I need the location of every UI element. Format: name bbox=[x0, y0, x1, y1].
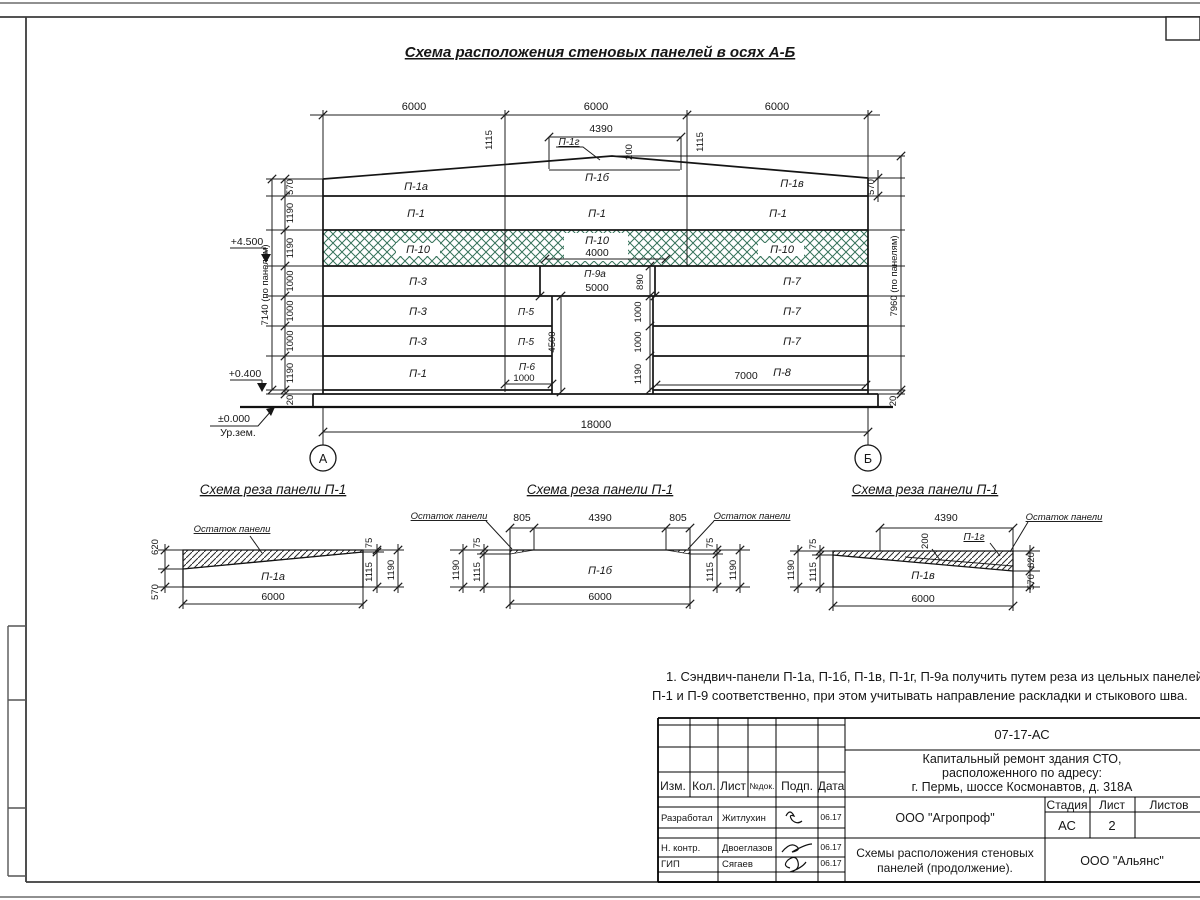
tb-header-cell: Лист bbox=[720, 779, 747, 793]
dim-label: 1190 bbox=[451, 560, 462, 580]
dim-label: 7000 bbox=[734, 370, 758, 382]
tb-name: Двоеглазов bbox=[722, 843, 773, 854]
panel-label: П-7 bbox=[783, 276, 802, 288]
dim-label: 20 bbox=[888, 396, 899, 407]
dim-label: 18000 bbox=[581, 419, 612, 431]
dim-label: 1190 bbox=[633, 364, 644, 384]
dim-label: 620 bbox=[1026, 552, 1037, 568]
dim-label: 1115 bbox=[705, 562, 716, 582]
elevation-mark: +0.400 bbox=[229, 368, 262, 380]
panel-label: П-1 bbox=[588, 208, 606, 220]
dim-label: 805 bbox=[513, 512, 531, 524]
dim-label: 75 bbox=[705, 538, 716, 549]
tb-header-cell: Лист bbox=[1099, 798, 1126, 812]
tb-header-cell: №док. bbox=[750, 781, 775, 791]
note-line: П-1 и П-9 соответственно, при этом учиты… bbox=[652, 688, 1188, 703]
panel-label: П-1в bbox=[911, 570, 935, 582]
scheme-title: Схема реза панели П-1 bbox=[527, 482, 674, 497]
dim-label: 1115 bbox=[808, 562, 819, 582]
cut-scheme-1: Схема реза панели П-1 Остаток панели П-1… bbox=[150, 482, 404, 609]
corner-mark-box bbox=[1166, 17, 1200, 40]
tb-header-cell: Листов bbox=[1150, 798, 1189, 812]
dim-label: 570 bbox=[1026, 574, 1037, 590]
panel-label: П-8 bbox=[773, 367, 792, 379]
panel-label: П-10 bbox=[770, 244, 795, 256]
panel-label: П-7 bbox=[783, 336, 802, 348]
drawing-sheet: Схема расположения стеновых панелей в ос… bbox=[0, 0, 1200, 900]
tb-role: Н. контр. bbox=[661, 843, 700, 854]
dim-label: 1000 bbox=[285, 330, 296, 351]
signature bbox=[782, 844, 812, 852]
left-margin-stamp-boxes bbox=[8, 626, 26, 876]
panel-label: П-1б bbox=[585, 172, 610, 184]
signature bbox=[786, 812, 802, 823]
sheet-number: 2 bbox=[1108, 818, 1115, 833]
panel-label: П-1в bbox=[780, 178, 804, 190]
elevation-mark: ±0.000 bbox=[218, 413, 250, 425]
tb-name: Житлухин bbox=[722, 813, 766, 824]
dim-label: 890 bbox=[635, 274, 646, 290]
dim-label: 200 bbox=[920, 533, 931, 549]
dim-label: 1115 bbox=[484, 130, 495, 150]
scheme-title: Схема реза панели П-1 bbox=[200, 482, 347, 497]
dim-label: 570 bbox=[285, 179, 296, 195]
dim-label: 1190 bbox=[728, 560, 739, 580]
dim-label: 4390 bbox=[934, 512, 958, 524]
panel-label: П-3 bbox=[409, 306, 428, 318]
dim-label: 6000 bbox=[911, 593, 935, 605]
panel-label: П-1 bbox=[407, 208, 425, 220]
remainder-label: Остаток панели bbox=[714, 511, 792, 522]
dim-label: 805 bbox=[669, 512, 687, 524]
elevation-mark: +4.500 bbox=[231, 236, 264, 248]
dim-label: 1000 bbox=[633, 301, 644, 322]
dim-label: 5000 bbox=[585, 282, 609, 294]
panel-label: П-1г bbox=[963, 532, 984, 543]
main-title: Схема расположения стеновых панелей в ос… bbox=[405, 44, 796, 61]
dim-label: 620 bbox=[150, 539, 161, 555]
dim-label: 1190 bbox=[786, 560, 797, 580]
panel-label: П-7 bbox=[783, 306, 802, 318]
drawing-canvas: Схема расположения стеновых панелей в ос… bbox=[0, 0, 1200, 900]
panel-label: П-1б bbox=[588, 565, 613, 577]
dim-label: 1190 bbox=[285, 238, 296, 258]
org-name: ООО "Агропроф" bbox=[895, 811, 994, 825]
ground-level-label: Ур.зем. bbox=[220, 427, 256, 439]
dim-label: 6000 bbox=[261, 591, 285, 603]
dim-label: 1190 bbox=[285, 203, 296, 223]
project-name: расположенного по адресу: bbox=[942, 766, 1102, 780]
panel-label: П-6 bbox=[519, 362, 536, 373]
panel-label: П-1 bbox=[409, 368, 427, 380]
remainder-label: Остаток панели bbox=[411, 511, 489, 522]
dim-label: 1190 bbox=[386, 560, 397, 580]
title-block: 07-17-АС Капитальный ремонт здания СТО, … bbox=[658, 718, 1200, 882]
dim-label: 6000 bbox=[402, 101, 426, 113]
dim-label: 200 bbox=[624, 144, 635, 160]
panel-label: П-1 bbox=[769, 208, 787, 220]
dim-label: 4000 bbox=[585, 247, 609, 259]
dim-label: 7960 (по панелям) bbox=[889, 235, 900, 316]
dim-label: 4390 bbox=[589, 123, 613, 135]
sheet-title: Схемы расположения стеновых bbox=[856, 846, 1034, 860]
tb-header-cell: Кол. bbox=[692, 779, 716, 793]
dim-label: 1000 bbox=[513, 373, 534, 384]
tb-header-cell: Дата bbox=[818, 779, 845, 793]
axis-label: Б bbox=[864, 452, 872, 466]
dim-label: 7140 (по панелям) bbox=[260, 244, 271, 325]
tb-header-cell: Изм. bbox=[660, 779, 686, 793]
panel-label: П-3 bbox=[409, 336, 428, 348]
scheme-title: Схема реза панели П-1 bbox=[852, 482, 999, 497]
remainder-label: Остаток панели bbox=[1026, 512, 1104, 523]
panel-label: П-10 bbox=[585, 235, 610, 247]
signature bbox=[785, 857, 806, 872]
cut-scheme-2: Схема реза панели П-1 Остаток панели Ост… bbox=[411, 482, 792, 609]
stage-value: АС bbox=[1058, 818, 1076, 833]
dim-label: 75 bbox=[472, 538, 483, 549]
dim-label: 4390 bbox=[588, 512, 612, 524]
cut-scheme-3: Схема реза панели П-1 4390 Остаток панел… bbox=[786, 482, 1103, 611]
note-line: 1. Сэндвич-панели П-1а, П-1б, П-1в, П-1г… bbox=[666, 669, 1200, 684]
axis-label: А bbox=[319, 452, 328, 466]
sheet-title: панелей (продолжение). bbox=[877, 861, 1013, 875]
dim-label: 1190 bbox=[285, 363, 296, 383]
tb-header-cell: Стадия bbox=[1047, 798, 1088, 812]
tb-role: Разработал bbox=[661, 813, 713, 824]
tb-role: ГИП bbox=[661, 859, 680, 870]
panel-label: П-9а bbox=[584, 269, 606, 280]
panel-label: П-3 bbox=[409, 276, 428, 288]
panel-label: П-1г bbox=[558, 137, 579, 148]
dim-label: 1000 bbox=[285, 300, 296, 321]
tb-header-cell: Подп. bbox=[781, 779, 813, 793]
panel-label: П-1а bbox=[261, 571, 285, 583]
tb-name: Сягаев bbox=[722, 859, 753, 870]
dim-label: 1000 bbox=[633, 331, 644, 352]
dim-label: 1115 bbox=[364, 562, 375, 582]
dim-label: 570 bbox=[150, 584, 161, 600]
dim-label: 1115 bbox=[472, 562, 483, 582]
project-name: г. Пермь, шоссе Космонавтов, д. 318А bbox=[912, 780, 1133, 794]
dim-label: 1000 bbox=[285, 270, 296, 291]
tb-date: 06.17 bbox=[820, 858, 842, 868]
panel-label: П-10 bbox=[406, 244, 431, 256]
doc-number: 07-17-АС bbox=[994, 727, 1049, 742]
org-name: ООО "Альянс" bbox=[1080, 854, 1164, 868]
remainder-label: Остаток панели bbox=[194, 524, 272, 535]
dim-label: 75 bbox=[808, 539, 819, 550]
dim-label: 6000 bbox=[765, 101, 789, 113]
panel-label: П-5 bbox=[518, 337, 535, 348]
dim-label: 75 bbox=[364, 538, 375, 549]
dim-label: 6000 bbox=[584, 101, 608, 113]
project-name: Капитальный ремонт здания СТО, bbox=[923, 752, 1122, 766]
panel-label: П-5 bbox=[518, 307, 535, 318]
dim-label: 4500 bbox=[547, 331, 558, 352]
dim-label: 6000 bbox=[588, 591, 612, 603]
panel-label: П-1а bbox=[404, 181, 428, 193]
dim-label: 570 bbox=[866, 179, 877, 195]
elevation-linework bbox=[210, 110, 905, 471]
dim-label: 1115 bbox=[695, 132, 706, 152]
notes: 1. Сэндвич-панели П-1а, П-1б, П-1в, П-1г… bbox=[652, 669, 1200, 703]
dim-label: 20 bbox=[285, 395, 296, 406]
tb-date: 06.17 bbox=[820, 812, 842, 822]
tb-date: 06.17 bbox=[820, 842, 842, 852]
